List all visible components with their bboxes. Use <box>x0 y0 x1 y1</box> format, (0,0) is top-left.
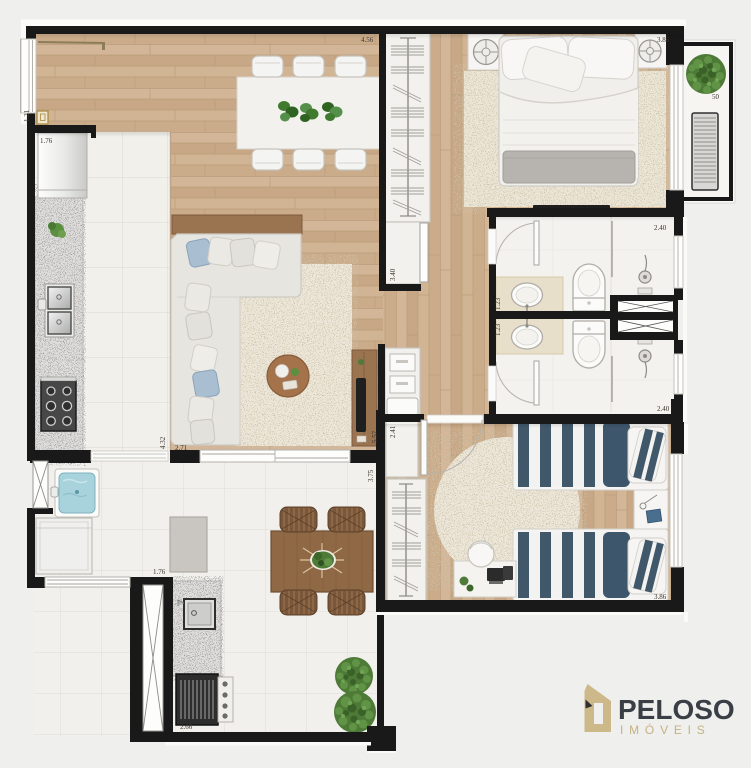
svg-text:1.76: 1.76 <box>153 568 166 576</box>
svg-text:IMÓVEIS: IMÓVEIS <box>620 722 711 737</box>
svg-text:3.75: 3.75 <box>367 469 375 482</box>
svg-text:2.66: 2.66 <box>180 723 193 731</box>
svg-text:50: 50 <box>712 93 720 101</box>
svg-text:4.56: 4.56 <box>361 36 374 44</box>
svg-text:1.23: 1.23 <box>494 323 502 336</box>
svg-text:2.41: 2.41 <box>389 425 397 438</box>
svg-text:3.86: 3.86 <box>654 593 667 601</box>
svg-text:3.86: 3.86 <box>657 36 670 44</box>
svg-text:2.71: 2.71 <box>175 444 188 452</box>
svg-text:2.40: 2.40 <box>657 405 670 413</box>
svg-text:1.23: 1.23 <box>494 297 502 310</box>
svg-text:PELOSO: PELOSO <box>618 694 735 725</box>
svg-text:1.76: 1.76 <box>40 137 53 145</box>
svg-text:1.21: 1.21 <box>23 109 31 122</box>
svg-text:2.40: 2.40 <box>654 224 667 232</box>
svg-text:3.40: 3.40 <box>389 268 397 281</box>
svg-text:4.32: 4.32 <box>159 436 167 449</box>
svg-text:5.57: 5.57 <box>371 430 379 443</box>
